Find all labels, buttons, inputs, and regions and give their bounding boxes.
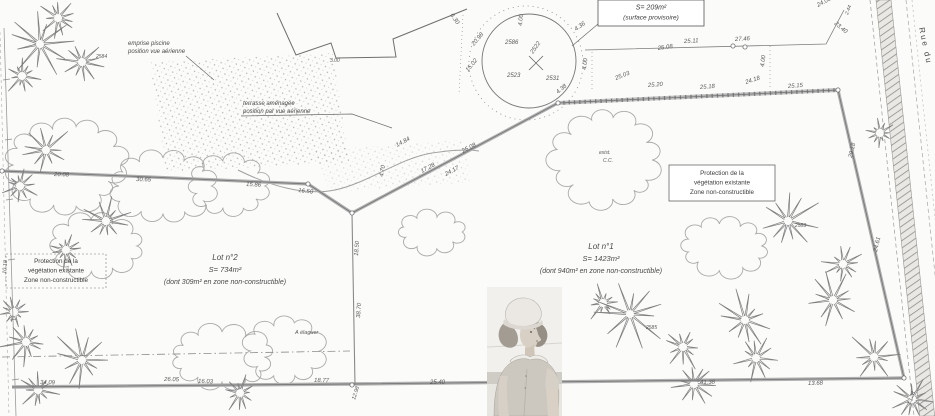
dimension-label: 18.50 <box>354 240 361 256</box>
dimension-label: 20.08 <box>53 172 70 179</box>
boundary-marker-icon <box>350 383 354 387</box>
surface-provisoire-label: S= 209m² (surface provisoire) <box>598 0 704 26</box>
dimension-label: 3.00 <box>330 58 340 64</box>
dimension-label: 10.18 <box>2 259 9 274</box>
vegetation-cloud-outline <box>681 217 768 279</box>
tree-star-icon <box>809 271 855 326</box>
terrace-line-1: terrasse aménagée <box>243 101 295 107</box>
tree-star-icon <box>0 297 29 327</box>
protection-left-line-1: Protection de la <box>34 258 78 265</box>
lot1-area: S= 1423m² <box>583 254 620 263</box>
dimension-label: C.C. <box>603 158 613 164</box>
lot2-label: Lot n°2 S= 734m² (dont 309m² en zone non… <box>164 253 286 286</box>
lot1-label: Lot n°1 S= 1423m² (dont 940m² en zone no… <box>540 242 662 275</box>
pool-line-1: emprise piscine <box>128 41 170 47</box>
tree-star-icon <box>12 11 74 75</box>
dimension-label: 25.20 <box>647 82 664 89</box>
overlay-portrait-photo <box>487 287 562 416</box>
dimension-label: 15.02 <box>465 57 480 73</box>
dimension-label: 2523 <box>506 73 521 79</box>
protection-zone-label-left: Protection de la végétation existante Zo… <box>6 254 106 288</box>
dimension-label: 13.68 <box>808 381 824 387</box>
dimension-label: 25.03 <box>614 70 632 82</box>
dimension-label: 24.18 <box>744 75 762 86</box>
dimension-label: 25.11 <box>683 38 699 45</box>
boundary-marker-icon <box>306 182 310 186</box>
tree-star-icon <box>82 196 131 235</box>
dimension-label: 16.03 <box>198 379 214 385</box>
boundary-marker-icon <box>902 376 906 380</box>
dimension-label: 20.98 <box>470 31 485 48</box>
dimension-label: 2522 <box>529 40 543 56</box>
dimension-label: 25.15 <box>787 83 804 90</box>
tree-star-icon <box>733 338 778 382</box>
boundary-marker-icon <box>0 169 4 173</box>
tree-star-icon <box>57 329 108 389</box>
dimension-label: 2586 <box>504 40 519 46</box>
dimension-label: 4.00 <box>760 54 767 67</box>
boundary-marker-icon <box>743 45 747 49</box>
dimension-label: 34.09 <box>40 380 56 386</box>
dimension-label: 24.61 <box>873 236 882 253</box>
tree-star-icon <box>852 337 900 376</box>
protection-left-line-2: végétation existante <box>28 268 85 275</box>
dimension-label: 13.28 <box>906 390 917 406</box>
tree-star-icon <box>56 46 104 81</box>
tree-star-icon <box>41 2 74 39</box>
dimension-label: 18.77 <box>314 378 330 384</box>
lot1-note: (dont 940m² en zone non-constructible) <box>540 268 662 275</box>
road-left-edge <box>0 28 19 416</box>
lot1-title: Lot n°1 <box>588 242 613 251</box>
tree-star-icon <box>21 371 60 405</box>
tree-star-icon <box>666 332 698 369</box>
dimension-label: 41.38 <box>700 380 716 386</box>
tree-star-icon <box>50 234 81 270</box>
boundary-marker-icon <box>836 88 840 92</box>
protection-left-line-3: Zone non-constructible <box>24 277 89 284</box>
dimension-label: 4.00 <box>582 57 589 70</box>
dimension-label: 15.86 <box>246 182 262 189</box>
surface-line-1: S= 209m² <box>636 5 667 12</box>
dimension-label: 4.38 <box>555 83 568 96</box>
boundary-tick <box>3 79 19 380</box>
dimension-label: 30.65 <box>136 177 152 184</box>
tree-star-icon <box>225 375 252 411</box>
dimension-label: 2531 <box>545 76 559 82</box>
surface-line-2: (surface provisoire) <box>623 15 679 22</box>
dimension-label: 4.00 <box>518 13 525 26</box>
dimension-annotations: 27.4625.1125.0824.0523.402.444.004.0025.… <box>2 0 917 406</box>
dimension-label: 25.40 <box>429 380 446 386</box>
boundary-marker-icon <box>350 211 354 215</box>
protection-zone-label-right: Protection de la végétation existante Zo… <box>669 165 775 201</box>
vegetation-cloud-outline <box>173 323 273 390</box>
dimension-label: 27.46 <box>734 36 751 43</box>
building-outline <box>277 9 467 58</box>
dimension-label: 16.50 <box>298 188 314 196</box>
lot2-title: Lot n°2 <box>212 253 238 262</box>
lot2-note: (dont 309m² en zone non-constructible) <box>164 279 286 286</box>
site-plan-drawing: 27.4625.1125.0824.0523.402.444.004.0025.… <box>0 0 935 416</box>
tree-star-icon <box>0 325 43 367</box>
survey-plan-page: 27.4625.1125.0824.0523.402.444.004.0025.… <box>0 0 935 416</box>
dimension-label: 25.18 <box>699 84 716 91</box>
protection-right-line-2: végétation existante <box>694 180 751 187</box>
protection-right-line-3: Zone non-constructible <box>690 189 755 196</box>
dimension-label: 2583 <box>794 223 806 229</box>
terrace-line-2: position par vue aérienne <box>242 109 311 115</box>
dimension-label: exist. <box>599 150 611 156</box>
vegetation-cloud-outline <box>398 209 465 256</box>
dimension-label: 26.05 <box>163 377 180 383</box>
tree-star-icon <box>594 283 661 348</box>
lot2-area: S= 734m² <box>209 265 242 274</box>
tree-symbols <box>0 2 934 415</box>
parcel-boundary <box>2 90 904 387</box>
dimension-label: 2.44 <box>844 4 853 16</box>
pool-line-2: position vue aérienne <box>127 49 186 55</box>
dimension-label: 4.36 <box>574 21 588 33</box>
dimension-label: 38.70 <box>356 302 363 318</box>
dimension-label: 6.30 <box>448 13 460 27</box>
protection-right-line-1: Protection de la <box>700 170 744 177</box>
dimension-label: 25.08 <box>656 44 673 52</box>
center-cross-icon <box>529 56 543 70</box>
street-name-label: Rue du <box>917 27 934 66</box>
dimension-label: 24.05 <box>815 0 833 9</box>
dimension-label: A élaguer <box>294 330 320 336</box>
dimension-label: 2584 <box>95 54 107 60</box>
tree-star-icon <box>719 289 770 344</box>
boundary-marker-icon <box>731 44 735 48</box>
dimension-label: 2585 <box>645 325 657 331</box>
boundary-marker-icon <box>556 101 560 105</box>
eye-detail <box>530 331 532 333</box>
pool-label: emprise piscine position vue aérienne <box>127 41 186 55</box>
vegetation-cloud-outline <box>242 316 326 385</box>
